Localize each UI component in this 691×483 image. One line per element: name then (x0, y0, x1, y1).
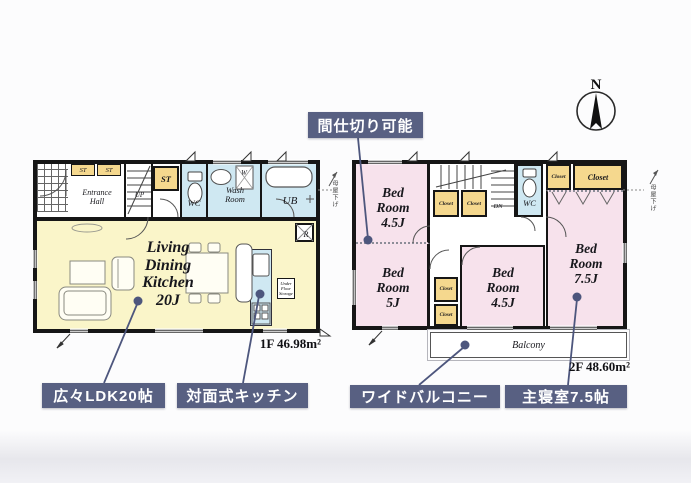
storage-st-2-label: ST (106, 167, 113, 174)
balcony: Balcony (430, 332, 627, 358)
bedroom-d-label: Bed Room 7.5J (549, 242, 623, 287)
kitchen-unit (250, 249, 272, 326)
entrance-porch (37, 164, 68, 212)
floorplan-image: ST ST ST Under Floor Storage Living Dini… (0, 0, 691, 483)
floor1-area-label: 1F 46.98m² (245, 336, 321, 352)
closet-label: Closet (588, 173, 608, 182)
closet-large-top: Closet (573, 164, 623, 190)
storage-st-3-label: ST (161, 174, 171, 184)
stairs-up-label: UP (126, 192, 153, 200)
fridge-label: R (300, 231, 312, 240)
badge-partition: 間仕切り可能 (308, 112, 423, 138)
wc-1f-label: WC (180, 199, 208, 208)
wc-2f-label: WC (516, 199, 543, 208)
compass-n-label: N (591, 77, 602, 93)
closet-label: Closet (440, 287, 453, 292)
closet-mid-1: Closet (434, 277, 458, 302)
badge-kitchen: 対面式キッチン (177, 383, 308, 408)
corner-tick-marks (57, 331, 382, 348)
storage-st-3: ST (153, 166, 179, 191)
ufs-line3: Storage (279, 291, 293, 296)
bedroom-a-label: Bed Room 4.5J (356, 186, 430, 231)
ub-label: UB (278, 195, 302, 207)
bottom-shade-band (0, 430, 691, 483)
washer-label: W (236, 170, 252, 178)
bedroom-c-label: Bed Room 4.5J (466, 266, 540, 311)
storage-st-1: ST (71, 164, 95, 176)
closet-under-stairs-1: Closet (433, 190, 459, 217)
entrance-hall-label: Entrance Hall (70, 189, 124, 207)
compass-icon: N (577, 77, 615, 130)
bath-room-ub (262, 164, 316, 217)
closet-label: Closet (439, 201, 453, 207)
badge-ldk: 広々LDK20帖 (42, 383, 165, 408)
badge-master: 主寝室7.5帖 (505, 385, 627, 408)
wash-room-label: Wash Room (209, 186, 261, 205)
toilet-room-2f (516, 164, 543, 217)
toilet-room-1f (180, 164, 208, 217)
closet-label: Closet (467, 201, 481, 207)
storage-st-1-label: ST (80, 167, 87, 174)
storage-st-2: ST (97, 164, 121, 176)
badge-balcony: ワイドバルコニー (350, 385, 500, 408)
balcony-label: Balcony (512, 340, 545, 351)
ldk-label: Living Dining Kitchen 20J (112, 239, 224, 309)
floor2-area-label: 2F 48.60m² (556, 359, 630, 375)
under-floor-storage-box: Under Floor Storage (277, 278, 295, 299)
closet-label: Closet (440, 313, 453, 318)
closet-small-top: Closet (546, 164, 571, 190)
stairs-down-label: DN (488, 203, 508, 210)
closet-mid-2: Closet (434, 304, 458, 326)
closet-label: Closet (551, 174, 565, 180)
bedroom-b-label: Bed Room 5J (356, 266, 430, 311)
closet-under-stairs-2: Closet (461, 190, 487, 217)
roof-note-2f: 母屋下げ (648, 184, 657, 212)
roof-note-1f: 母屋下げ (330, 180, 339, 208)
